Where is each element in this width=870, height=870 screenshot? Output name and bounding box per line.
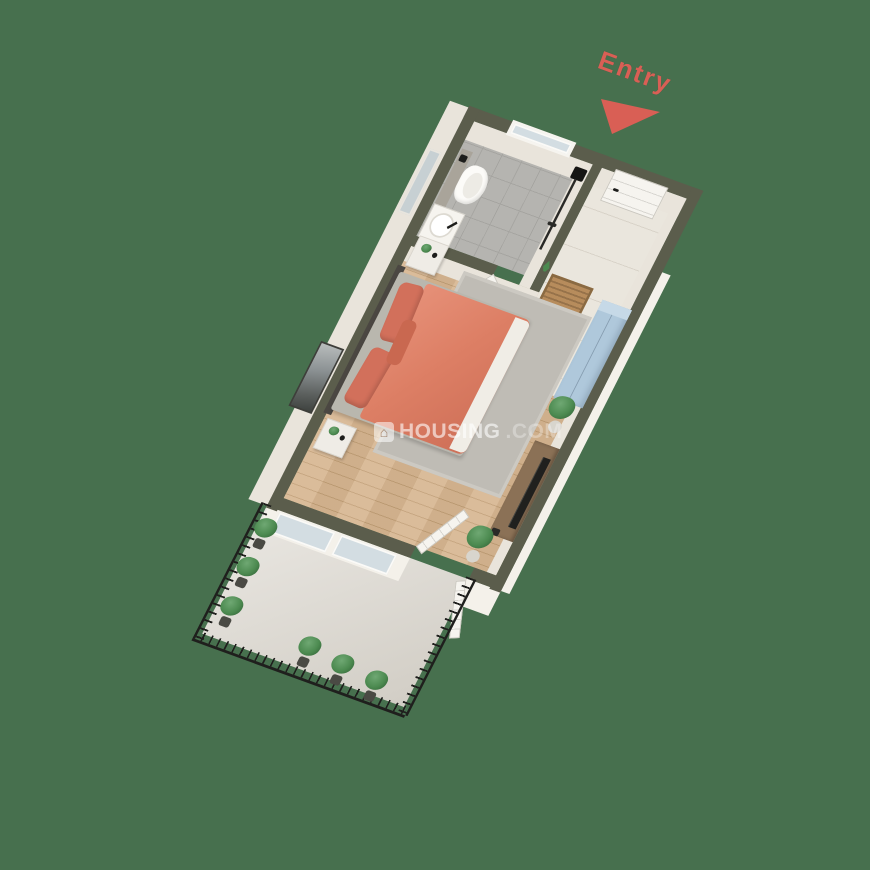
plant-pot <box>362 690 377 703</box>
watermark-suffix: .COM <box>506 420 563 444</box>
apartment-unit <box>201 108 701 723</box>
plant-pot <box>252 537 267 550</box>
plant-pot <box>464 548 482 564</box>
plant-pot <box>329 674 344 687</box>
plant-pot <box>218 615 233 628</box>
watermark: ⌂ HOUSING .COM <box>374 420 562 444</box>
floorplan-render: Entry ⌂ HOUSING .COM <box>0 0 870 870</box>
plant-pot <box>296 656 311 669</box>
housing-logo-house-icon: ⌂ <box>374 422 394 442</box>
watermark-text: HOUSING <box>399 420 501 444</box>
plant-pot <box>234 576 249 589</box>
entry-arrow-icon <box>594 92 674 142</box>
